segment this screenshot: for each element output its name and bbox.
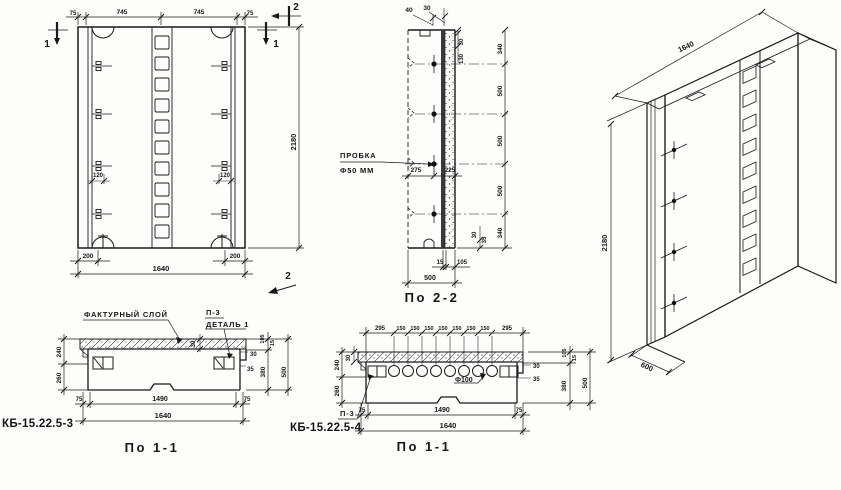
dim-sec11b-150d: 150 [438,326,447,332]
dim-sec11b-380: 380 [561,380,568,391]
iso-side-face [798,33,836,283]
anchor-clamp-symbols [96,62,227,219]
dim-front-200-left: 200 [83,253,94,260]
label-hole-f100: Ф100 [455,377,473,384]
dim-sec22-bot-30: 30 [472,231,478,238]
iso-top-edge-back [810,39,836,50]
dim-sec11b-240: 240 [334,359,341,370]
iso-ladder-squares [743,66,756,276]
dim-sec22-rot-130: 130 [459,53,465,64]
dim-sec11b-150b: 150 [410,326,419,332]
dim-front-top-745-left: 745 [117,9,128,16]
section-mark-1-left [48,22,68,45]
texture-label-leader [83,320,180,340]
dim-sec11a-r35: 35 [247,367,254,373]
dim-sec22-30-top: 30 [423,5,431,12]
label-p3-a: П-3 [206,308,220,317]
plug-label-leader [340,162,429,164]
dim-sec11b-75r: 75 [516,408,523,414]
caption-section-1-1-left: По 1-1 [125,440,180,455]
sec11a-col-dim-ticks [265,336,291,393]
anchor-dim-lines [88,168,235,184]
dim-sec22-right-340b: 340 [497,227,504,238]
sec11a-embeds [93,357,234,369]
dim-anchor-120-right: 120 [220,173,231,179]
dim-sec22-right-500c: 500 [497,185,504,196]
dim-sec11a-380: 380 [260,366,267,377]
iso-hook-recess-a [686,92,705,101]
dim-sec11a-r30: 30 [250,352,257,358]
section-2-2-view: 40 30 30 130 ПРОБКА Ф50 ММ 275 225 340 5… [340,5,512,305]
front-top-dim-lines [66,12,258,25]
mark-kb-15-22-5-3: КБ-15.22.5-3 [2,418,73,430]
dim-sec11b-260: 260 [334,385,341,396]
caption-section-2-2: По 2-2 [405,290,460,305]
dim-sec11a-rot30: 30 [191,340,197,347]
sec22-texture-layer [445,30,455,248]
dim-sec22-275: 275 [411,167,422,174]
dim-sec11b-295l: 295 [375,326,386,332]
dim-sec11b-15: 15 [572,355,578,361]
dim-sec11b-105: 105 [562,348,568,357]
dim-sec11b-150c: 150 [424,326,433,332]
label-detail-1: ДЕТАЛЬ 1 [206,320,249,329]
iso-front-face [665,33,798,337]
dim-sec11a-105: 105 [260,334,266,343]
dim-sec11b-150a: 150 [396,326,405,332]
sec11a-texture-layer [80,339,246,349]
section-mark-2-bottom [268,285,296,294]
iso-top-face [647,33,810,109]
section-1-1-right-view: 295 150 150 150 150 150 150 150 295 Ф100… [290,326,596,454]
plug-label-line1: ПРОБКА [340,151,376,160]
p3-detail-arrow [227,353,233,359]
dim-front-top-75-right: 75 [247,11,254,17]
section-label-1-left: 1 [44,39,50,50]
plug-label-line2: Ф50 ММ [340,166,374,175]
iso-bottom-depth-edge [647,345,685,362]
dim-sec22-105: 105 [457,260,468,266]
lifting-hook-recesses [92,27,233,248]
dim-front-200-right: 200 [230,253,241,260]
dim-sec11b-75l: 75 [359,408,366,414]
dim-sec11a-500: 500 [281,366,288,377]
dim-front-top-75-left: 75 [70,11,77,17]
dim-sec22-right-340a: 340 [497,43,504,54]
dim-sec22-rot-30: 30 [459,38,465,45]
caption-section-1-1-right: По 1-1 [397,439,452,454]
sec22-bottom-notch [424,239,434,248]
dim-sec11b-1640: 1640 [440,421,457,430]
sec22-plug-centerlines [405,64,508,214]
dim-sec11a-240: 240 [56,346,63,357]
dim-sec11b-rot30: 30 [346,354,352,361]
dim-sec11b-500: 500 [582,377,589,388]
dim-anchor-120-left: 120 [93,173,104,179]
dim-sec11b-150g: 150 [480,326,489,332]
dim-sec22-40: 40 [405,7,413,14]
dim-front-width-1640: 1640 [153,264,170,273]
sec22-hidden-keyways [408,58,414,218]
sec11a-left-step [80,349,88,357]
sec22-plug-dots [431,61,436,216]
dim-front-height-2180: 2180 [289,134,298,151]
sec11a-r30-r35-lines [240,352,248,366]
dim-sec11b-r30: 30 [533,364,540,370]
dim-sec11b-295r: 295 [502,326,513,332]
sec11b-left-step [358,362,366,370]
iso-facing-layer-lines [651,99,655,343]
dim-sec11b-1490: 1490 [434,407,450,414]
sec22-bottom-dim-lines [402,250,470,288]
dim-front-top-745-right: 745 [194,9,205,16]
drawing-sheet: 75 745 745 75 1 1 2 2 120 120 2180 200 2… [0,0,841,490]
dim-sec11a-75r: 75 [244,397,251,403]
label-texture-layer: ФАКТУРНЫЙ СЛОЙ [84,310,168,319]
anchor-clamp-lines [92,66,231,214]
sec11b-texture-layer [358,352,523,362]
iso-dim-height-lines [607,103,647,363]
dim-sec11a-1640: 1640 [155,411,172,420]
dim-sec11a-75l: 75 [76,397,83,403]
dim-sec11b-150e: 150 [452,326,461,332]
dim-sec22-500: 500 [424,275,436,282]
hole-label-arrow [480,373,486,380]
sec11b-col-dim-ticks [567,349,593,406]
dim-iso-600: 600 [639,360,654,373]
section-label-2-bottom: 2 [285,271,291,282]
section-label-2-top: 2 [293,2,299,13]
section-1-1-left-view: ФАКТУРНЫЙ СЛОЙ П-3 ДЕТАЛЬ 1 30 240 260 3… [2,308,292,455]
dim-sec22-right-500b: 500 [497,135,504,146]
iso-hook-recess-b [756,59,775,68]
dim-sec22-15: 15 [437,260,444,266]
section-label-1-right: 1 [273,39,279,50]
dim-sec11a-15: 15 [270,340,276,346]
front-elevation-view: 75 745 745 75 1 1 2 2 120 120 2180 200 2… [44,2,304,294]
label-p3-b: П-3 [340,409,354,418]
sec22-top-notch [420,30,430,36]
dim-sec22-225: 225 [445,167,456,174]
dim-sec11b-150f: 150 [466,326,475,332]
dim-sec11a-1490: 1490 [152,396,168,403]
dim-sec22-bot-35: 35 [482,236,488,243]
dim-sec11b-r35: 35 [533,377,540,383]
isometric-view: 1640 2180 600 [600,9,836,375]
ladder-keyway-squares [155,36,169,238]
sec11b-r30-r35-lines [517,365,531,378]
iso-end-face [647,95,665,345]
dim-sec11a-260: 260 [56,372,63,383]
dim-sec22-right-500a: 500 [497,85,504,96]
sec22-mortar-layer [441,30,445,248]
panel-outline [78,27,245,248]
dim-iso-2180: 2180 [600,235,609,252]
panel-edge-strips [88,27,235,248]
mark-kb-15-22-5-4: КБ-15.22.5-4 [290,422,362,434]
